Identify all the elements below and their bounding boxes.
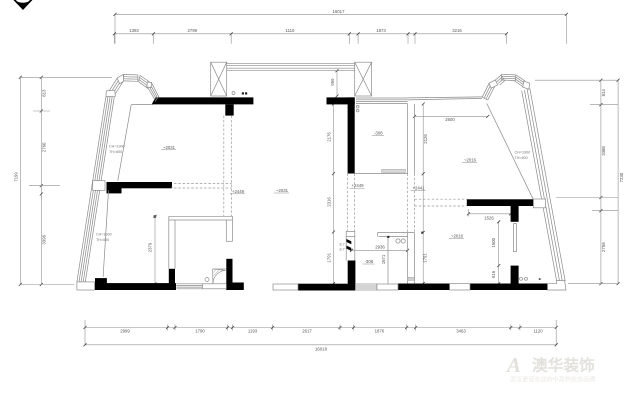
svg-text:16018: 16018 [315,347,328,352]
svg-text:1876: 1876 [375,328,385,333]
svg-text:1526: 1526 [484,215,494,220]
svg-text:2617: 2617 [302,328,312,333]
svg-text:+2449: +2449 [352,183,365,188]
svg-text:1393: 1393 [129,28,139,33]
svg-text:813: 813 [41,89,46,97]
svg-text:1193: 1193 [248,328,258,333]
svg-text:2126: 2126 [423,134,428,144]
svg-text:~2016: ~2016 [464,158,477,163]
svg-text:1120: 1120 [533,328,543,333]
svg-text:~2031: ~2031 [163,145,176,150]
svg-text:~2031: ~2031 [276,188,289,193]
svg-text:+2449: +2449 [232,189,245,194]
svg-text:616: 616 [491,270,496,278]
svg-text:1500: 1500 [491,237,496,247]
svg-text:3463: 3463 [456,328,466,333]
svg-text:CH=1900: CH=1900 [109,145,125,149]
svg-text:2999: 2999 [120,328,130,333]
svg-text:2316: 2316 [327,197,332,207]
svg-text:959: 959 [330,78,335,86]
svg-text:2936: 2936 [375,245,385,250]
svg-text:2600: 2600 [445,117,455,122]
svg-text:武汉更受欢迎的中高档装饰品牌: 武汉更受欢迎的中高档装饰品牌 [510,376,595,384]
svg-text:CH=1900: CH=1900 [515,151,531,155]
svg-text:TH=600: TH=600 [109,150,122,154]
svg-text:8.7: 8.7 [340,248,345,252]
svg-text:1791: 1791 [423,253,428,263]
svg-text:16017: 16017 [333,9,346,14]
svg-text:3216: 3216 [452,28,462,33]
svg-text:-308: -308 [365,259,374,264]
svg-text:1791: 1791 [327,252,332,262]
svg-text:澳华装饰: 澳华装饰 [532,356,595,375]
svg-text:3396: 3396 [41,234,46,244]
svg-text:TH=600: TH=600 [96,238,109,242]
svg-text:3388: 3388 [601,146,606,156]
svg-text:1671: 1671 [381,254,386,264]
svg-text:-308: -308 [374,131,383,136]
svg-text:TH=600: TH=600 [515,156,528,160]
svg-text:+2441: +2441 [413,185,426,190]
svg-text:8.7: 8.7 [340,243,345,247]
svg-text:CH=1900: CH=1900 [96,233,112,237]
svg-text:7230: 7230 [619,172,624,182]
svg-text:2760: 2760 [41,142,46,152]
svg-text:814: 814 [601,89,606,97]
svg-text:2379: 2379 [148,242,153,252]
svg-text:1110: 1110 [286,28,296,33]
svg-text:2799: 2799 [188,28,198,33]
svg-text:~2016: ~2016 [451,234,464,239]
svg-text:A: A [505,353,521,377]
svg-text:7199: 7199 [14,172,19,182]
svg-text:2176: 2176 [327,132,332,142]
svg-text:1790: 1790 [195,328,205,333]
svg-text:1873: 1873 [376,28,386,33]
svg-text:2758: 2758 [601,242,606,252]
